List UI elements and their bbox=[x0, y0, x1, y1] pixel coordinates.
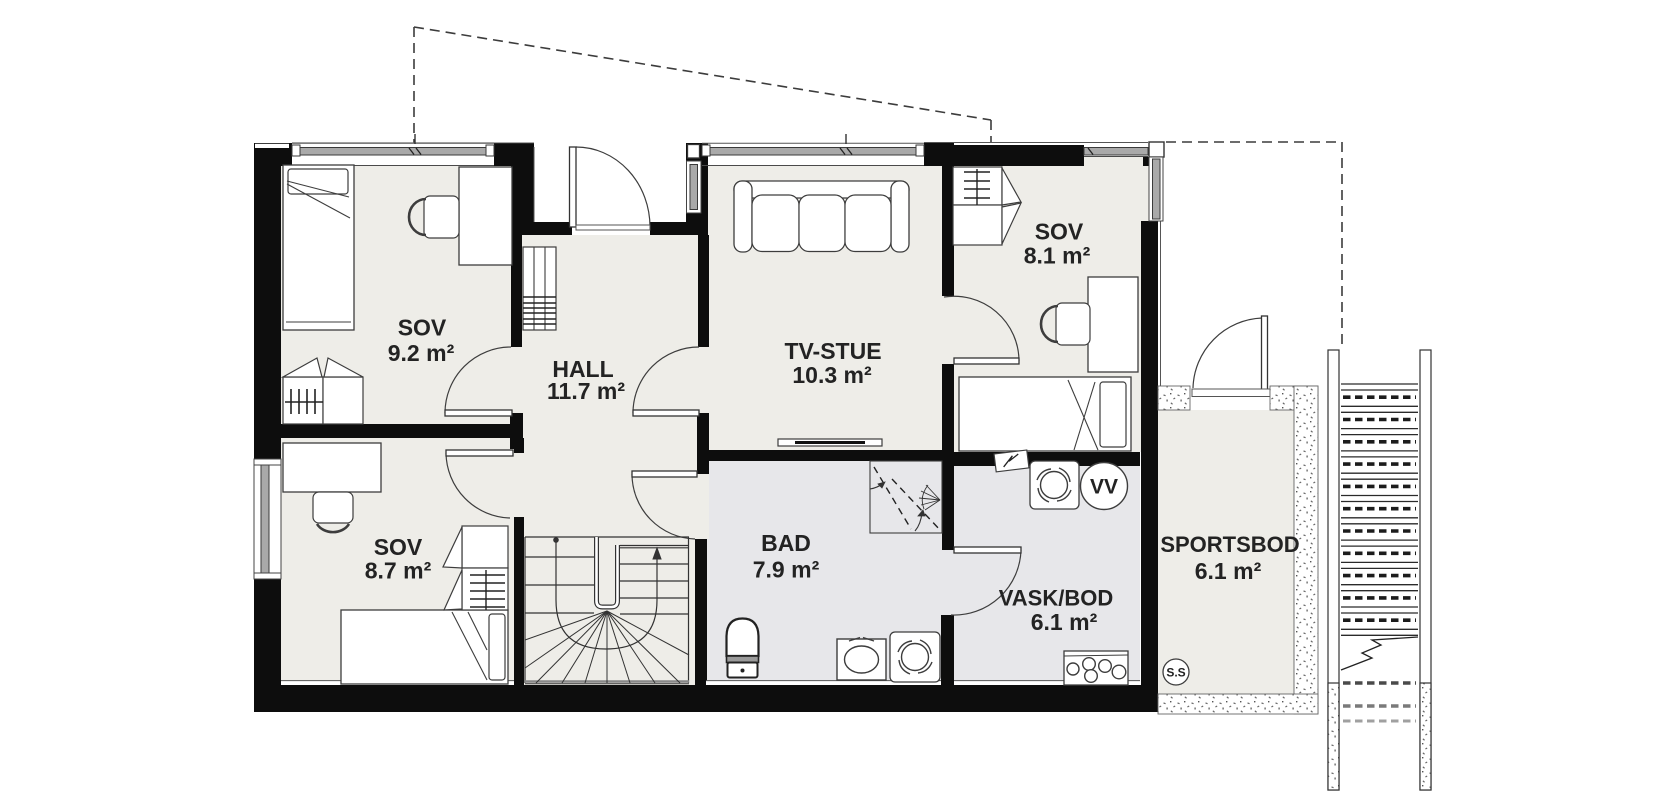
svg-text:TV-STUE: TV-STUE bbox=[784, 338, 881, 364]
svg-text:VASK/BOD: VASK/BOD bbox=[999, 586, 1114, 611]
svg-text:8.1 m²: 8.1 m² bbox=[1024, 243, 1091, 269]
svg-text:11.7 m²: 11.7 m² bbox=[547, 378, 625, 404]
svg-text:8.7 m²: 8.7 m² bbox=[365, 558, 432, 584]
svg-text:VV: VV bbox=[1090, 476, 1118, 499]
svg-text:7.9 m²: 7.9 m² bbox=[753, 557, 820, 583]
svg-text:BAD: BAD bbox=[761, 530, 811, 556]
svg-text:SOV: SOV bbox=[1035, 219, 1084, 245]
svg-text:SOV: SOV bbox=[398, 315, 447, 341]
svg-text:10.3 m²: 10.3 m² bbox=[792, 362, 872, 388]
svg-text:SPORTSBOD: SPORTSBOD bbox=[1160, 532, 1299, 557]
svg-text:9.2 m²: 9.2 m² bbox=[388, 340, 455, 366]
svg-text:6.1 m²: 6.1 m² bbox=[1195, 558, 1262, 584]
svg-text:SOV: SOV bbox=[374, 534, 423, 560]
svg-text:S.S: S.S bbox=[1166, 666, 1185, 680]
svg-text:6.1 m²: 6.1 m² bbox=[1031, 609, 1098, 635]
